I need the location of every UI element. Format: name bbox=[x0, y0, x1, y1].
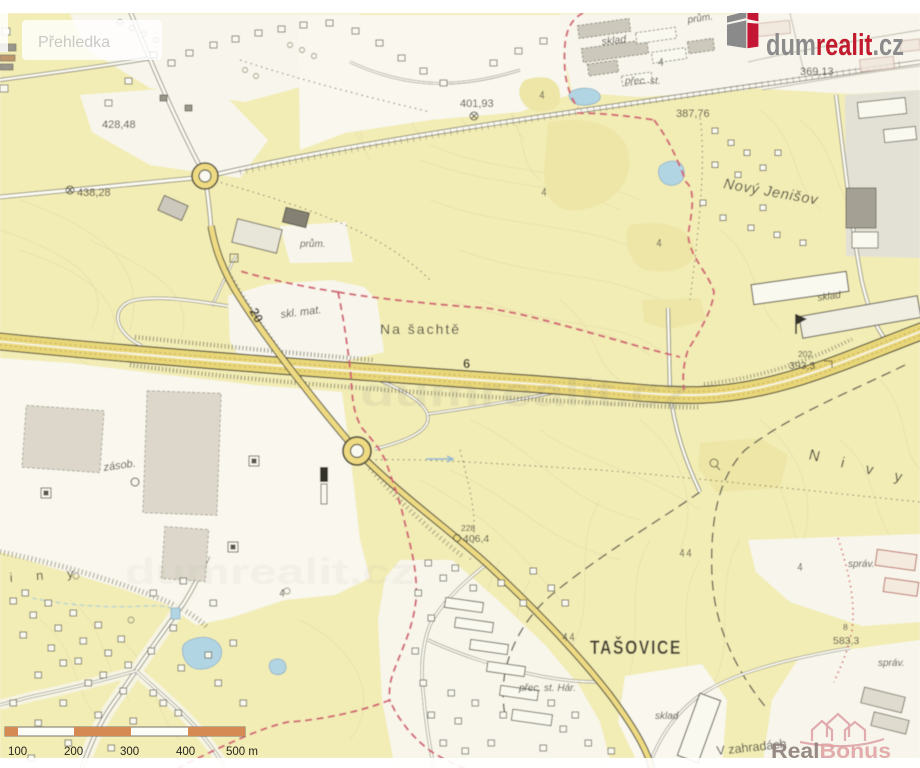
svg-text:500 m: 500 m bbox=[226, 746, 258, 758]
svg-text:dumrealit.cz: dumrealit.cz bbox=[766, 27, 904, 62]
svg-text:400: 400 bbox=[176, 746, 195, 758]
svg-text:RealBonus: RealBonus bbox=[771, 740, 891, 763]
svg-text:100: 100 bbox=[8, 746, 27, 758]
svg-text:Přehledka: Přehledka bbox=[38, 34, 110, 51]
svg-text:200: 200 bbox=[64, 746, 83, 758]
svg-text:300: 300 bbox=[120, 746, 139, 758]
